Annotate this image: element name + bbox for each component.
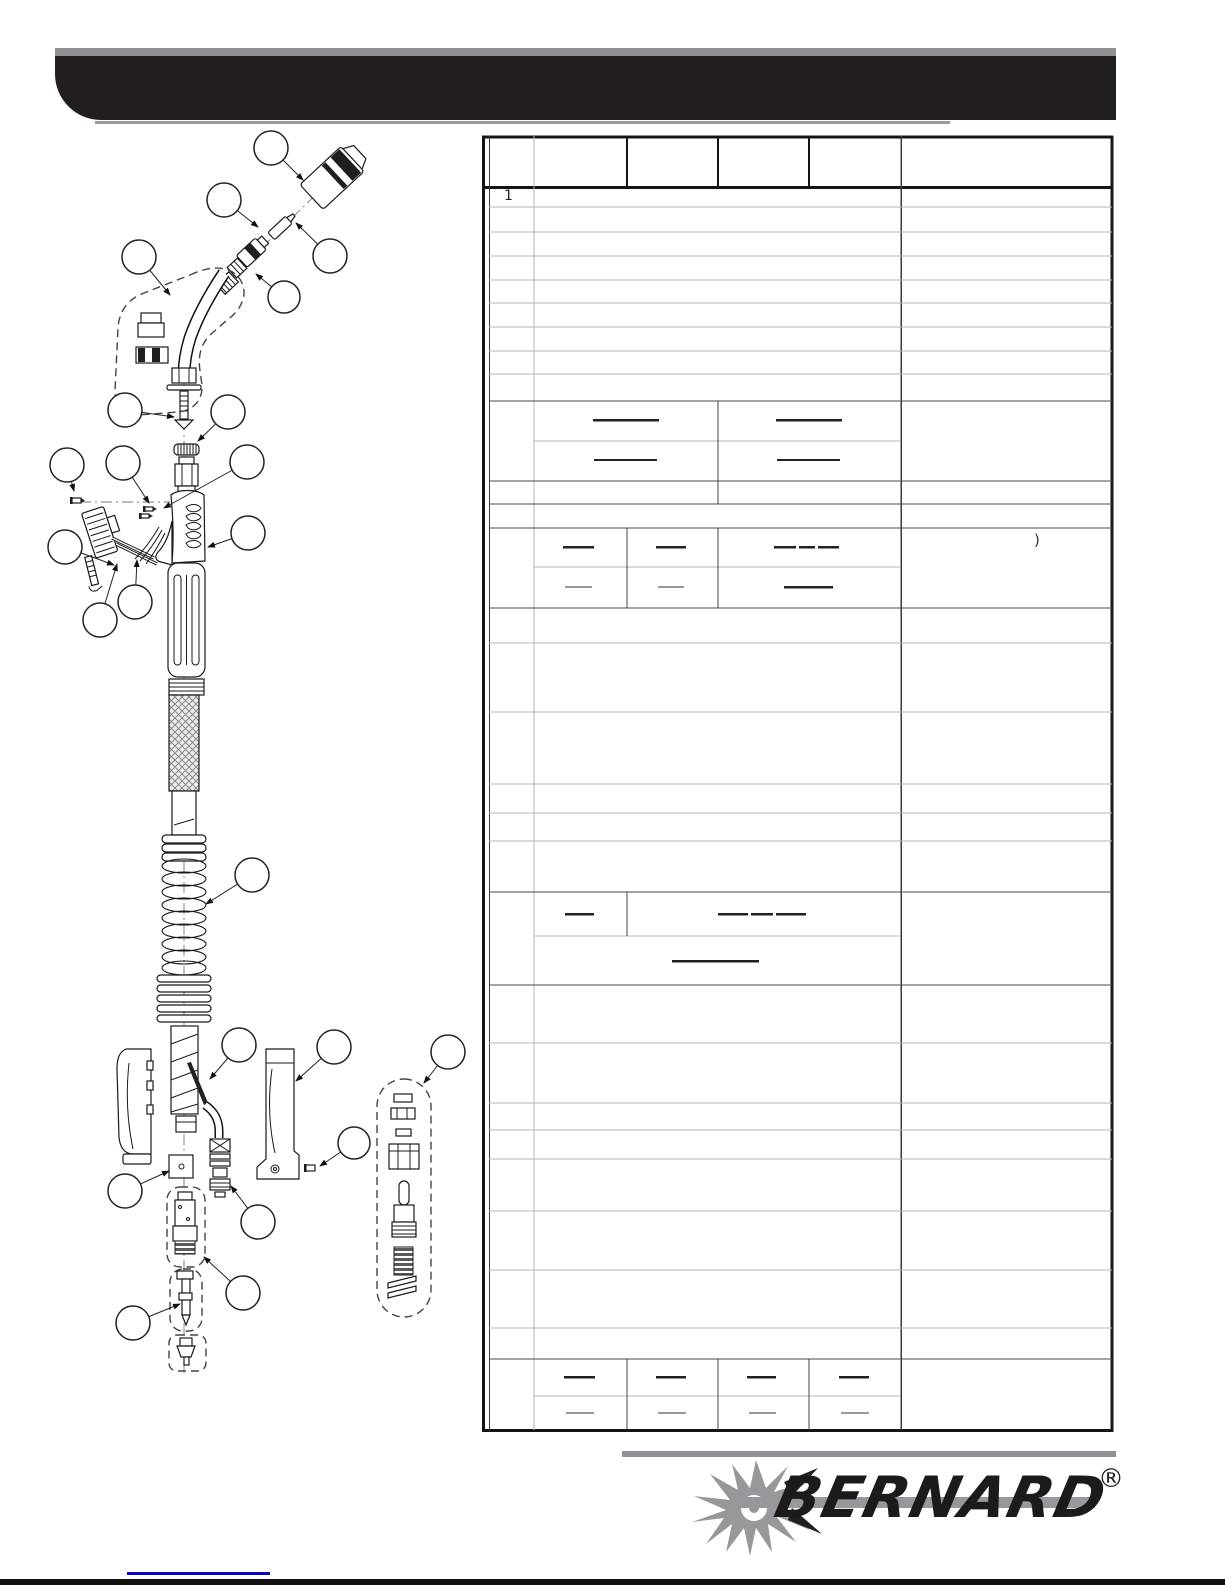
contact-tip bbox=[268, 211, 297, 239]
connector-plug bbox=[210, 1139, 230, 1197]
bernard-logo-text: BERNARD bbox=[770, 1470, 1111, 1527]
handle-screw bbox=[304, 1164, 315, 1172]
table-stray-paren: ) bbox=[1034, 531, 1040, 549]
taped-cable-end bbox=[171, 1026, 219, 1138]
neck-insulator-icon bbox=[136, 347, 168, 363]
handle-half-right bbox=[257, 1049, 299, 1179]
registered-trademark-symbol: ® bbox=[1098, 1466, 1124, 1492]
repair-kit-parts bbox=[388, 1094, 419, 1298]
footer-gray-rule bbox=[622, 1451, 1116, 1457]
trigger-screw-1 bbox=[143, 506, 157, 512]
trigger-screw-2 bbox=[139, 513, 153, 519]
underline-marks-gray bbox=[565, 586, 869, 1414]
hex-nut bbox=[175, 457, 198, 492]
manual-page: { "parts_table": { "item_1": "1", "stray… bbox=[0, 0, 1225, 1585]
cable-tube bbox=[172, 791, 196, 835]
flare-tip bbox=[177, 1338, 195, 1365]
exploded-parts-diagram bbox=[28, 123, 473, 1438]
parts-table-grid bbox=[481, 134, 1115, 1434]
knurled-locknut bbox=[174, 444, 199, 455]
underline-marks bbox=[563, 419, 869, 1379]
table-item-number: 1 bbox=[483, 188, 534, 204]
footer-link-underline[interactable] bbox=[127, 1572, 270, 1575]
header-banner bbox=[55, 56, 1116, 120]
page-bottom-bar bbox=[0, 1579, 1225, 1585]
small-screw-left bbox=[70, 497, 85, 504]
liner-assembly bbox=[177, 1271, 193, 1325]
neck-nut-icon bbox=[138, 313, 164, 337]
cable-braid bbox=[169, 695, 199, 791]
power-pin-assembly bbox=[173, 1192, 197, 1254]
handle bbox=[156, 491, 205, 696]
handle-half-left bbox=[117, 1049, 153, 1164]
trigger-assembly bbox=[70, 497, 165, 592]
connector-block bbox=[169, 1155, 193, 1178]
